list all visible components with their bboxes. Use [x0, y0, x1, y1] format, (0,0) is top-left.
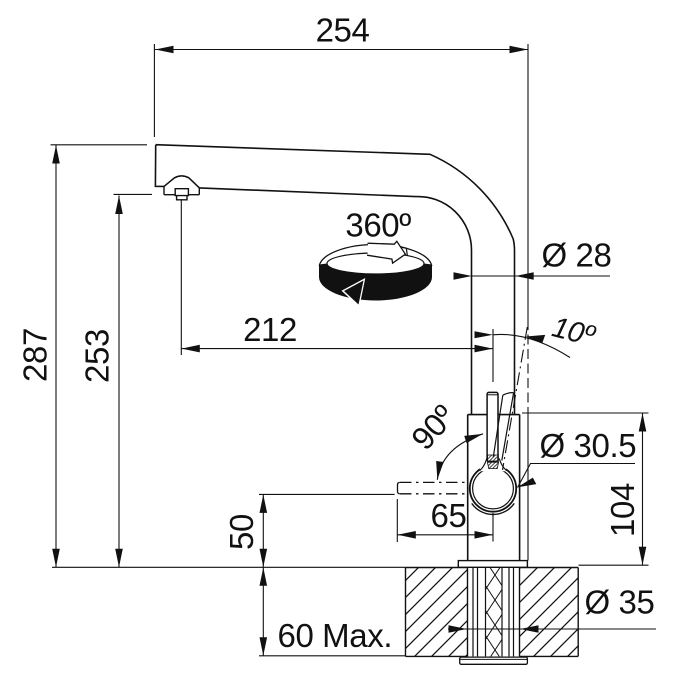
svg-text:254: 254	[316, 12, 370, 49]
svg-text:253: 253	[79, 329, 116, 383]
svg-text:360º: 360º	[345, 207, 411, 244]
svg-text:50: 50	[223, 514, 260, 550]
svg-text:Ø 30.5: Ø 30.5	[540, 427, 637, 464]
svg-text:Ø 28: Ø 28	[542, 237, 612, 274]
svg-text:60 Max.: 60 Max.	[278, 617, 393, 654]
svg-text:Ø 35: Ø 35	[585, 584, 655, 621]
svg-text:65: 65	[431, 497, 467, 534]
svg-text:104: 104	[604, 483, 641, 537]
svg-text:212: 212	[243, 311, 297, 348]
svg-text:287: 287	[17, 328, 54, 382]
